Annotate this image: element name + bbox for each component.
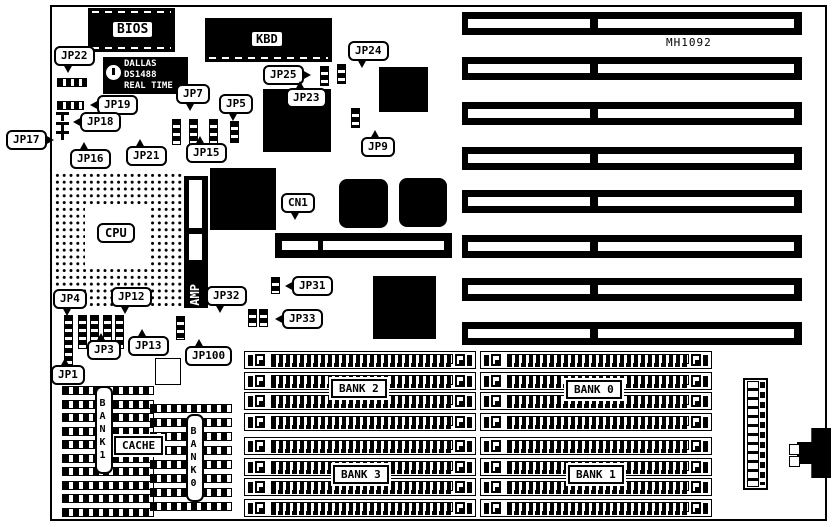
callout-jp16: JP16 — [70, 149, 111, 169]
callout-jp5: JP5 — [219, 94, 253, 114]
amp-connector: AMP — [184, 176, 208, 308]
cache-label: CACHE — [114, 436, 163, 455]
simm-clip-l — [255, 354, 265, 366]
callout-cn1: CN1 — [281, 193, 315, 213]
simm-cap-r — [703, 355, 708, 366]
amp-slot-1 — [189, 180, 202, 228]
cn1-seg2 — [323, 241, 444, 250]
callout-tail-jp3 — [96, 333, 106, 342]
jumper-block-14 — [259, 309, 268, 327]
simm-cap-l — [484, 503, 489, 514]
jumper-block-16 — [78, 315, 87, 349]
simm-clip-r — [455, 481, 465, 493]
simm-clip-l — [491, 375, 501, 387]
callout-tail-jp19 — [90, 100, 99, 110]
bank-label-bank3: BANK 3 — [333, 465, 389, 484]
din-pin-2 — [789, 456, 800, 467]
simm-cap-l — [484, 355, 489, 366]
callout-tail-jp12 — [120, 305, 130, 314]
simm-pin-comb2 — [507, 425, 687, 429]
simm-clip-r — [691, 461, 701, 473]
callout-tail-jp25 — [302, 70, 311, 80]
callout-tail-cn1 — [290, 211, 300, 220]
cache-bank0-strip-1 — [150, 404, 232, 413]
callout-jp15: JP15 — [186, 143, 227, 163]
simm-cap-l — [248, 482, 253, 493]
callout-jp17: JP17 — [6, 130, 47, 150]
simm-cap-r — [467, 503, 472, 514]
plcc-chip-2 — [399, 178, 447, 227]
simm-cap-r — [467, 482, 472, 493]
callout-tail-jp9 — [370, 130, 380, 139]
simm-cap-r — [467, 441, 472, 452]
cn1-seg1 — [282, 241, 318, 250]
simm-pin-comb2 — [271, 425, 451, 429]
power-pin-column-2 — [760, 382, 765, 485]
rtc-line3: REAL TIME — [124, 81, 173, 92]
isa-slot-4 — [462, 147, 802, 170]
simm-slot-bank1-4 — [480, 499, 712, 517]
simm-clip-r — [691, 416, 701, 428]
isa-slot-2-seg2 — [598, 64, 794, 73]
simm-clip-l — [255, 375, 265, 387]
simm-slot-bank0-4 — [480, 413, 712, 431]
cache-bank0-strip-8 — [150, 502, 232, 511]
cache-bank1-strip-10 — [62, 508, 154, 517]
isa-slot-7-seg1 — [468, 285, 590, 294]
isa-slot-4-seg2 — [598, 154, 794, 163]
isa-slot-6 — [462, 235, 802, 258]
callout-tail-jp1 — [60, 358, 70, 367]
simm-cap-l — [248, 396, 253, 407]
simm-cap-r — [703, 441, 708, 452]
jumper-block-9 — [320, 66, 329, 86]
callout-jp24: JP24 — [348, 41, 389, 61]
callout-tail-jp18 — [73, 117, 82, 127]
simm-cap-l — [248, 417, 253, 428]
solid-chip-1 — [379, 67, 428, 112]
bios-dash-bottom — [92, 47, 171, 49]
simm-slot-bank3-4 — [244, 499, 476, 517]
jumper-block-8 — [230, 121, 239, 143]
callout-tail-jp7 — [185, 102, 195, 111]
isa-slot-1-seg2 — [598, 19, 794, 28]
simm-cap-l — [248, 441, 253, 452]
isa-slot-4-seg1 — [468, 154, 590, 163]
callout-jp32: JP32 — [206, 286, 247, 306]
callout-jp3: JP3 — [87, 340, 121, 360]
simm-clip-r — [691, 354, 701, 366]
isa-slot-8-seg1 — [468, 329, 590, 338]
callout-jp23: JP23 — [286, 88, 327, 108]
simm-clip-l — [491, 440, 501, 452]
power-pin-column — [747, 381, 759, 487]
amp-label: AMP — [188, 284, 202, 306]
simm-clip-r — [455, 395, 465, 407]
callout-jp31: JP31 — [292, 276, 333, 296]
simm-clip-l — [491, 461, 501, 473]
simm-clip-l — [255, 502, 265, 514]
simm-cap-l — [484, 462, 489, 473]
simm-clip-l — [255, 481, 265, 493]
jumper-block-1 — [57, 101, 84, 110]
jumper-block-11 — [351, 108, 360, 128]
callout-tail-jp22 — [63, 64, 73, 73]
callout-jp18: JP18 — [80, 112, 121, 132]
simm-cap-l — [248, 462, 253, 473]
simm-pin-comb2 — [507, 511, 687, 515]
clock-icon — [106, 65, 121, 80]
simm-cap-l — [484, 396, 489, 407]
callout-tail-jp100 — [194, 339, 204, 348]
callout-jp13: JP13 — [128, 336, 169, 356]
callout-jp22: JP22 — [54, 46, 95, 66]
callout-tail-jp15 — [195, 136, 205, 145]
isa-slot-1-seg1 — [468, 19, 590, 28]
simm-pin-comb2 — [271, 449, 451, 453]
isa-slot-1 — [462, 12, 802, 35]
simm-clip-r — [691, 375, 701, 387]
simm-cap-r — [467, 355, 472, 366]
simm-slot-bank2-1 — [244, 351, 476, 369]
callout-tail-jp33 — [275, 314, 284, 324]
simm-cap-l — [484, 482, 489, 493]
bank-label-bank2: BANK 2 — [331, 379, 387, 398]
kbd-label: KBD — [251, 31, 283, 47]
simm-pin-comb2 — [271, 511, 451, 515]
simm-cap-r — [703, 396, 708, 407]
simm-cap-l — [484, 441, 489, 452]
simm-clip-r — [691, 481, 701, 493]
rtc-line2: DS1488 — [124, 70, 173, 81]
jumper-block-2 — [56, 112, 69, 121]
bios-label: BIOS — [112, 21, 153, 38]
jumper-block-7 — [209, 119, 218, 145]
kbd-dash-bottom — [209, 57, 328, 59]
callout-tail-jp4 — [62, 307, 72, 316]
simm-cap-l — [248, 376, 253, 387]
simm-clip-r — [691, 440, 701, 452]
simm-clip-r — [455, 416, 465, 428]
simm-slot-bank3-1 — [244, 437, 476, 455]
simm-cap-r — [467, 376, 472, 387]
simm-slot-bank0-1 — [480, 351, 712, 369]
simm-clip-r — [691, 395, 701, 407]
callout-jp100: JP100 — [185, 346, 232, 366]
simm-cap-r — [703, 503, 708, 514]
callout-tail-jp31 — [285, 281, 294, 291]
isa-slot-3 — [462, 102, 802, 125]
power-connector — [743, 378, 768, 490]
simm-pin-comb2 — [507, 449, 687, 453]
simm-cap-r — [703, 482, 708, 493]
callout-jp9: JP9 — [361, 137, 395, 157]
simm-cap-l — [248, 355, 253, 366]
isa-slot-2-seg1 — [468, 64, 590, 73]
jumper-block-3 — [56, 122, 69, 131]
motherboard-diagram: MH1092 BIOS KBD DALLAS DS1488 REAL TIME … — [0, 0, 835, 527]
jumper-block-10 — [337, 64, 346, 84]
simm-clip-r — [691, 502, 701, 514]
simm-pin-comb2 — [507, 490, 687, 494]
simm-clip-r — [455, 354, 465, 366]
simm-clip-l — [491, 481, 501, 493]
rtc-logo-text: DALLAS DS1488 REAL TIME — [124, 59, 173, 92]
simm-clip-l — [491, 502, 501, 514]
simm-pin-comb2 — [271, 404, 451, 408]
simm-cap-r — [467, 417, 472, 428]
simm-clip-l — [255, 461, 265, 473]
callout-jp21: JP21 — [126, 146, 167, 166]
cpu-label: CPU — [97, 223, 135, 243]
simm-cap-r — [467, 396, 472, 407]
plcc-chip-1 — [339, 179, 388, 228]
kbd-chip: KBD — [205, 18, 332, 62]
isa-slot-6-seg1 — [468, 242, 590, 251]
jumper-block-13 — [248, 309, 257, 327]
callout-tail-jp32 — [215, 304, 225, 313]
callout-jp4: JP4 — [53, 289, 87, 309]
simm-cap-r — [703, 462, 708, 473]
callout-tail-jp16 — [79, 142, 89, 151]
isa-slot-7 — [462, 278, 802, 301]
qfp-chip-1 — [210, 168, 276, 230]
jumper-block-20 — [176, 316, 185, 340]
simm-pin-comb2 — [507, 404, 687, 408]
callout-tail-jp24 — [357, 59, 367, 68]
callout-tail-jp21 — [135, 139, 145, 148]
callout-tail-jp13 — [137, 329, 147, 338]
jumper-block-5 — [172, 119, 181, 145]
isa-slot-7-seg2 — [598, 285, 794, 294]
bank-label-bank0: BANK 0 — [566, 380, 622, 399]
callout-tail-jp23 — [295, 81, 305, 90]
callout-jp33: JP33 — [282, 309, 323, 329]
callout-tail-jp17 — [45, 135, 54, 145]
simm-clip-l — [491, 354, 501, 366]
isa-slot-8 — [462, 322, 802, 345]
callout-jp12: JP12 — [111, 287, 152, 307]
cache-bank1-label: BANK1 — [95, 386, 113, 474]
simm-slot-bank2-4 — [244, 413, 476, 431]
callout-tail-jp5 — [228, 112, 238, 121]
simm-cap-l — [248, 503, 253, 514]
callout-jp7: JP7 — [176, 84, 210, 104]
callout-jp1: JP1 — [51, 365, 85, 385]
simm-clip-r — [455, 461, 465, 473]
simm-clip-l — [491, 395, 501, 407]
simm-pin-comb2 — [271, 490, 451, 494]
simm-pin-comb2 — [271, 363, 451, 367]
cache-bank1-strip-8 — [62, 481, 154, 490]
isa-slot-6-seg2 — [598, 242, 794, 251]
din-pin-1 — [789, 444, 800, 455]
qfp-chip-3 — [373, 276, 436, 339]
simm-clip-r — [455, 502, 465, 514]
simm-slot-bank1-1 — [480, 437, 712, 455]
isa-slot-5-seg1 — [468, 197, 590, 206]
bank-label-bank1: BANK 1 — [568, 465, 624, 484]
bios-dash-top — [92, 11, 171, 13]
simm-clip-r — [455, 375, 465, 387]
cn1-edge-connector — [275, 233, 452, 258]
empty-socket — [155, 358, 181, 385]
isa-slot-5-seg2 — [598, 197, 794, 206]
simm-clip-r — [455, 440, 465, 452]
isa-slot-3-seg2 — [598, 109, 794, 118]
simm-clip-l — [255, 395, 265, 407]
jumper-block-12 — [271, 277, 280, 294]
simm-cap-r — [467, 462, 472, 473]
bios-chip: BIOS — [88, 8, 175, 52]
isa-slot-5 — [462, 190, 802, 213]
isa-slot-2 — [462, 57, 802, 80]
board-model-label: MH1092 — [666, 36, 712, 49]
simm-clip-l — [491, 416, 501, 428]
isa-slot-3-seg1 — [468, 109, 590, 118]
jumper-block-0 — [57, 78, 87, 87]
simm-cap-r — [703, 417, 708, 428]
cache-bank0-label: BANK0 — [186, 414, 204, 502]
simm-clip-l — [255, 440, 265, 452]
simm-cap-l — [484, 376, 489, 387]
amp-slot-2 — [189, 234, 202, 260]
simm-cap-r — [703, 376, 708, 387]
simm-pin-comb2 — [507, 363, 687, 367]
isa-slot-8-seg2 — [598, 329, 794, 338]
simm-clip-l — [255, 416, 265, 428]
rtc-line1: DALLAS — [124, 59, 173, 70]
simm-cap-l — [484, 417, 489, 428]
cache-bank1-strip-9 — [62, 494, 154, 503]
jumper-block-4 — [56, 131, 69, 140]
